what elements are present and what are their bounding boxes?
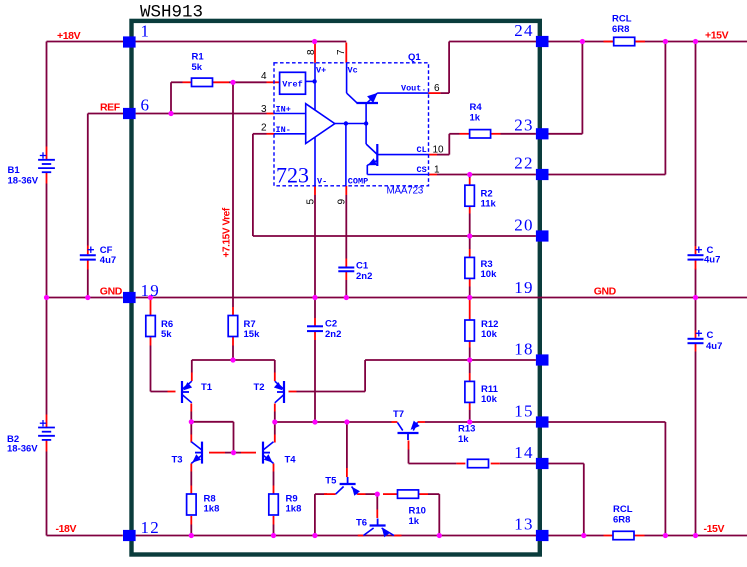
svg-text:18: 18 — [514, 340, 534, 359]
svg-text:C: C — [707, 330, 714, 341]
svg-text:T2: T2 — [254, 382, 265, 393]
svg-text:9: 9 — [337, 199, 348, 205]
svg-text:723: 723 — [276, 163, 309, 188]
svg-text:10k: 10k — [481, 394, 498, 405]
svg-text:R13: R13 — [458, 424, 475, 435]
svg-text:2n2: 2n2 — [356, 271, 372, 282]
svg-text:19: 19 — [141, 281, 161, 300]
svg-text:6: 6 — [141, 96, 151, 115]
svg-text:+15V: +15V — [705, 30, 729, 42]
svg-text:10k: 10k — [481, 269, 498, 280]
svg-text:1k: 1k — [470, 113, 481, 124]
svg-text:14: 14 — [514, 443, 534, 462]
svg-text:CS: CS — [416, 165, 426, 175]
svg-text:5k: 5k — [192, 62, 203, 73]
svg-text:MAA723: MAA723 — [387, 186, 424, 197]
svg-text:1k8: 1k8 — [286, 504, 302, 515]
svg-text:RCL: RCL — [612, 14, 632, 25]
svg-text:3: 3 — [261, 104, 267, 115]
svg-text:+18V: +18V — [57, 30, 81, 42]
svg-text:2n2: 2n2 — [325, 329, 341, 340]
svg-text:IN+: IN+ — [276, 105, 291, 115]
svg-text:T7: T7 — [393, 409, 404, 420]
svg-text:1k8: 1k8 — [204, 504, 220, 515]
svg-text:12: 12 — [141, 518, 161, 537]
svg-text:+7.15V Vref: +7.15V Vref — [222, 207, 233, 257]
svg-text:GND: GND — [594, 286, 617, 298]
svg-text:-18V: -18V — [56, 523, 77, 535]
svg-text:T6: T6 — [356, 518, 367, 529]
svg-text:-15V: -15V — [704, 523, 725, 535]
svg-text:1k: 1k — [458, 434, 469, 445]
svg-text:5k: 5k — [161, 329, 172, 340]
svg-text:18-36V: 18-36V — [8, 175, 39, 186]
svg-text:10k: 10k — [481, 329, 498, 340]
svg-text:15k: 15k — [244, 329, 261, 340]
svg-text:2: 2 — [261, 123, 267, 134]
svg-text:1: 1 — [434, 164, 440, 175]
svg-text:5: 5 — [306, 199, 317, 205]
svg-text:4: 4 — [261, 71, 267, 82]
svg-text:23: 23 — [514, 116, 534, 135]
svg-text:10: 10 — [433, 145, 445, 156]
svg-text:Vref: Vref — [282, 80, 302, 90]
svg-text:6R8: 6R8 — [612, 24, 629, 35]
svg-text:RCL: RCL — [613, 504, 633, 515]
svg-text:Vout.: Vout. — [401, 84, 427, 94]
svg-text:1k: 1k — [409, 516, 420, 527]
svg-text:1: 1 — [141, 22, 151, 41]
svg-text:WSH913: WSH913 — [140, 2, 203, 22]
svg-text:11k: 11k — [481, 199, 497, 210]
svg-text:6R8: 6R8 — [613, 515, 630, 526]
svg-text:19: 19 — [514, 278, 534, 297]
svg-text:4u7: 4u7 — [704, 255, 720, 266]
svg-text:C2: C2 — [325, 319, 337, 330]
svg-text:T4: T4 — [285, 454, 297, 465]
svg-text:6: 6 — [434, 83, 440, 94]
svg-text:R4: R4 — [470, 102, 483, 113]
svg-text:T1: T1 — [201, 382, 213, 393]
svg-text:18-36V: 18-36V — [7, 444, 38, 455]
svg-text:REF: REF — [100, 102, 121, 114]
svg-text:R1: R1 — [192, 52, 205, 63]
svg-text:Q1: Q1 — [408, 52, 421, 63]
svg-text:V+: V+ — [316, 66, 326, 76]
svg-text:13: 13 — [514, 515, 534, 534]
svg-text:C1: C1 — [356, 261, 369, 272]
svg-text:IN-: IN- — [276, 125, 291, 135]
svg-text:R10: R10 — [409, 506, 426, 517]
svg-text:COMP: COMP — [348, 177, 368, 187]
svg-text:Vc: Vc — [348, 66, 358, 76]
svg-text:GND: GND — [100, 286, 123, 298]
svg-text:CL: CL — [416, 145, 426, 155]
svg-text:T3: T3 — [172, 454, 183, 465]
svg-text:4u7: 4u7 — [100, 255, 116, 266]
svg-text:8: 8 — [306, 49, 317, 55]
svg-text:20: 20 — [514, 216, 534, 235]
svg-text:15: 15 — [514, 402, 534, 421]
svg-text:22: 22 — [514, 154, 534, 173]
svg-text:4u7: 4u7 — [706, 341, 722, 352]
svg-text:V-: V- — [317, 177, 327, 187]
svg-text:7: 7 — [336, 49, 347, 55]
svg-text:T5: T5 — [325, 476, 337, 487]
svg-text:24: 24 — [514, 21, 534, 40]
